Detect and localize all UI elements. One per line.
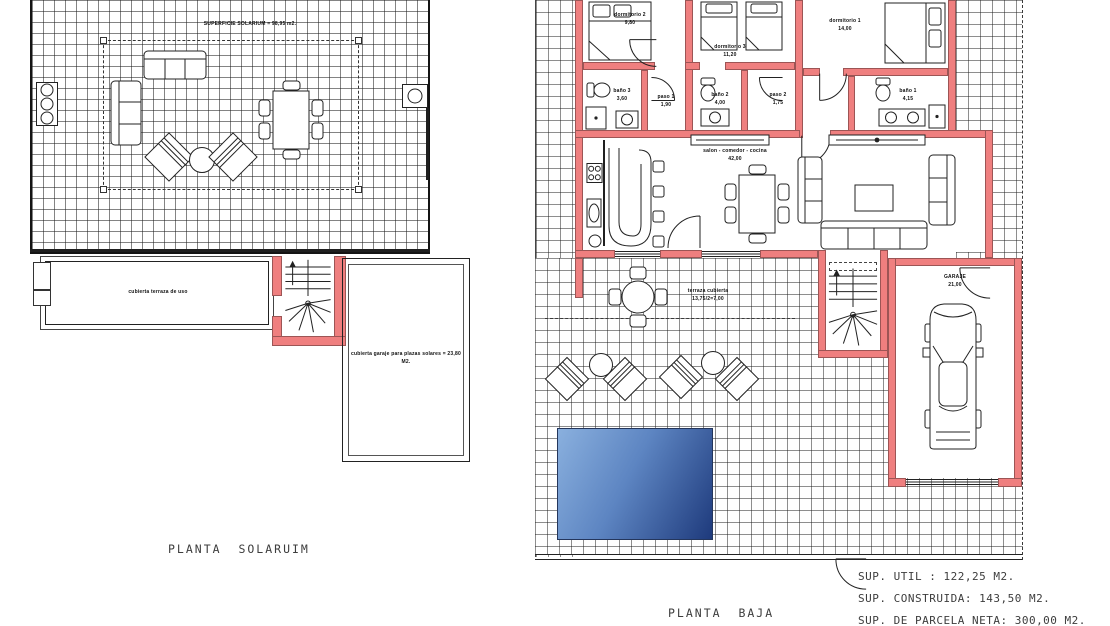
swimming-pool: [557, 428, 713, 540]
wall-exterior-right: [948, 0, 956, 138]
shower-icon: [928, 104, 946, 129]
step-box: [33, 262, 51, 290]
sink-icon: [700, 108, 730, 127]
garage-wall: [998, 478, 1022, 487]
bed-icon: [884, 2, 946, 64]
wall-segment: [641, 70, 648, 132]
sliding-door: [615, 251, 660, 257]
wall-segment: [685, 62, 700, 70]
dining-set-icon: [256, 80, 326, 160]
room-label-bano3: baño 33,60: [602, 88, 642, 103]
stair-wall: [880, 250, 888, 358]
summary-line: SUP. CONSTRUIDA: 143,50 M2.: [858, 592, 1050, 605]
fence-line: [535, 559, 1023, 560]
stairs-icon: [827, 266, 879, 348]
wall-segment: [426, 108, 429, 180]
garage-wall: [1014, 258, 1022, 487]
door-arc-icon: [666, 214, 702, 250]
stairs-icon: [283, 258, 333, 334]
plan-solarium-title: PLANTA SOLARUIM: [168, 542, 310, 556]
kitchen-sink-icon: [586, 198, 602, 228]
wall-exterior-right: [985, 130, 993, 258]
fence-line: [535, 554, 1023, 555]
wall-stub: [575, 258, 583, 298]
wall-exterior-left: [575, 0, 583, 258]
chimney-icon: [402, 84, 428, 108]
wall-segment: [741, 70, 748, 132]
patio-table-icon: [608, 266, 668, 328]
solarium-area-note: SUPERFICIE SOLARIUM = 98,95 m2.: [155, 21, 345, 29]
room-label-salon: salon - comedor - cocina42,00: [685, 148, 785, 163]
wall-segment: [760, 250, 818, 258]
sofa-icon: [928, 154, 956, 226]
room-label-terraza: terraza cubierta13,75/2=7,00: [668, 288, 748, 303]
coffee-table-icon: [854, 184, 894, 212]
stair-wall: [818, 250, 826, 358]
door-arc-icon: [628, 38, 658, 68]
plot-boundary-line: [1022, 0, 1023, 560]
wall-segment: [843, 68, 948, 76]
stair-wall: [818, 350, 888, 358]
tv-unit-icon: [828, 134, 926, 146]
door-arc-icon: [818, 72, 848, 102]
step-box: [33, 290, 51, 306]
sofa-icon: [110, 80, 142, 146]
dining-set-icon: [722, 164, 792, 244]
summary-line: SUP. DE PARCELA NETA: 300,00 M2.: [858, 614, 1086, 626]
plan-baja-title: PLANTA BAJA: [668, 606, 774, 620]
room-label-bano2: baño 24,00: [700, 92, 740, 107]
shower-icon: [585, 106, 607, 130]
wall-segment: [848, 76, 855, 132]
pergola-post: [355, 186, 362, 193]
floor-plan-sheet: SUPERFICIE SOLARIUM = 98,95 m2.: [0, 0, 1110, 626]
sink-icon: [615, 110, 639, 129]
sofa-icon: [820, 220, 928, 250]
stool-icon: [652, 160, 665, 250]
wall-pillar: [660, 250, 702, 258]
wall-segment: [575, 250, 615, 258]
summary-block: SUP. UTIL : 122,25 M2. SUP. CONSTRUIDA: …: [858, 570, 1110, 626]
hob-icon: [586, 162, 603, 184]
summary-line: SUP. UTIL : 122,25 M2.: [858, 570, 1015, 583]
room-label-dormitorio3: dormitorio 311,20: [700, 44, 760, 59]
garage-wall: [888, 478, 906, 487]
room-label-dormitorio2: dormitorio 29,80: [600, 12, 660, 27]
room-label-garaje: GARAJE21,00: [925, 274, 985, 289]
pergola-post: [100, 37, 107, 44]
pergola-post: [355, 37, 362, 44]
roof-terrace-label: cubierta terraza de uso: [98, 289, 218, 297]
bar-counter-icon: [605, 148, 653, 250]
garage-wall: [888, 258, 896, 487]
double-sink-icon: [878, 108, 926, 127]
garage-wall: [888, 258, 1022, 266]
wall-segment: [795, 0, 803, 138]
solarium-parapet: [30, 249, 430, 252]
stool-icon: [588, 234, 602, 248]
garage-door: [906, 479, 998, 485]
pergola-post: [100, 186, 107, 193]
car-icon: [922, 300, 984, 450]
sofa-icon: [143, 50, 207, 80]
room-label-dormitorio1: dormitorio 114,00: [815, 18, 875, 33]
sliding-door: [702, 251, 760, 257]
garage-roof-label: cubierta garaje para plazas solares = 23…: [348, 351, 464, 366]
room-label-paso1: paso 11,90: [648, 94, 684, 109]
stair-wall: [272, 336, 346, 346]
sideboard-icon: [690, 134, 770, 146]
planter-circles-icon: [36, 82, 58, 126]
sofa-icon: [797, 156, 823, 224]
stair-wall: [272, 256, 282, 296]
room-label-bano1: baño 14,15: [888, 88, 928, 103]
room-label-paso2: paso 21,75: [760, 92, 796, 107]
covered-terrace-edge: [545, 318, 795, 319]
wall-segment: [725, 62, 795, 70]
